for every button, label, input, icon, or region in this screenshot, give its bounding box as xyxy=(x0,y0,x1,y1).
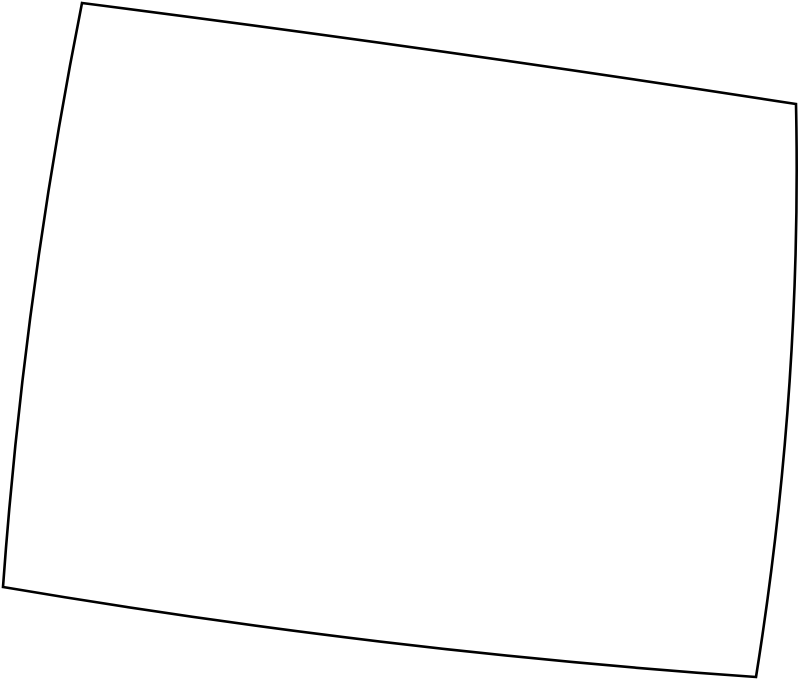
map-canvas xyxy=(0,0,800,683)
wyoming-outline-map xyxy=(0,0,800,683)
state-border-path xyxy=(3,3,797,677)
